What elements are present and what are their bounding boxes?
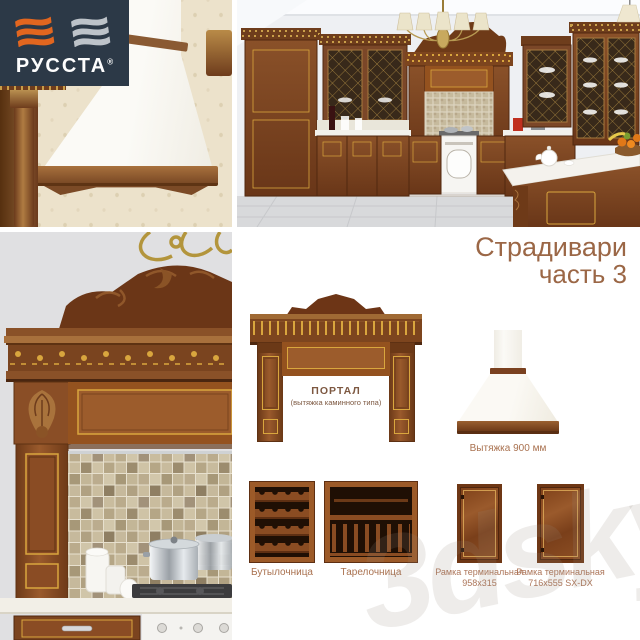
waving-flags-icon [14,7,116,47]
products-panel: Страдивари часть 3 [237,232,640,640]
portal-column-right [388,342,415,442]
portal-beam [68,382,232,449]
hood-render [457,330,559,438]
frame-large-caption-line2: 716х555 SX-DX [516,578,605,589]
hood-band [490,368,526,375]
hood-plinth [457,421,559,434]
brand-logo: РУССТА® [0,0,129,86]
counter-edge [0,612,232,614]
bottle-rack-caption: Бутылочница [250,567,314,579]
portal-column-panel [393,356,410,410]
kitchen-overview-photo [237,0,640,227]
portal-cornice-lip [250,314,422,319]
kitchen-scene [237,0,640,227]
hinge [541,548,544,552]
carved-column [14,92,34,227]
frame-large-caption-line1: Рамка терминальная [516,567,605,578]
bottle-shelf [255,543,309,553]
portal-column-left [257,342,284,442]
portal-figure: ПОРТАЛ (вытяжка каминного типа) [250,294,422,442]
portal-column [26,454,58,588]
registered-mark: ® [107,57,113,66]
plate-rack-bottom-bar [330,553,412,556]
portal-crest [286,294,386,316]
collection-title-line2: часть 3 [475,261,627,287]
portal-column-capital [389,343,414,353]
frame-terminal-large-figure: Рамка терминальная 716х555 SX-DX [537,484,584,589]
frame-small-caption-line1: Рамка терминальная [435,567,524,578]
hood-rail [68,451,232,454]
plate-rack-slats [332,524,410,552]
brand-name: РУССТА® [0,55,129,78]
portal-column-panel [262,356,279,410]
portal-label: ПОРТАЛ (вытяжка каминного типа) [283,376,389,442]
plate-rack-render [325,482,417,562]
frame-terminal-small-caption: Рамка терминальная 958х315 [435,567,524,589]
plate-rack-caption: Тарелочница [325,567,417,579]
bottle-rack-render [250,482,314,562]
countertop [0,598,232,614]
oven-front [142,614,232,640]
frame-terminal-large-render [537,484,584,563]
hinge [461,495,464,499]
portal-label-line1: ПОРТАЛ [283,385,389,397]
cornice-frieze [4,328,232,382]
tall-cabinet-left [241,28,321,196]
portal-label-line2: (вытяжка каминного типа) [283,398,389,407]
frame-gold-outline [543,490,578,557]
portal-column-capital [258,343,283,353]
portal-gold-frieze [253,321,419,335]
hood-wood-shelf [34,166,218,186]
plate-rack-figure: Тарелочница [325,482,417,579]
base-drawer [14,616,140,640]
frame-small-caption-line2: 958х315 [435,578,524,589]
frame-terminal-large-caption: Рамка терминальная 716х555 SX-DX [516,567,605,589]
hood-cone [458,374,558,422]
hinge [461,548,464,552]
frame-terminal-small-figure: Рамка терминальная 958х315 [457,484,502,589]
frame-gold-outline [463,490,496,557]
portal-column-base [263,419,278,434]
hood-chimney [494,330,522,370]
frame-terminal-small-render [457,484,502,563]
collection-title-line1: Страдивари [475,234,627,261]
bottle-shelf [255,492,309,502]
bottle-shelf [255,509,309,519]
portal-cornice [250,314,422,345]
portal-beam [282,342,390,378]
glass-cabinets-right [521,22,640,145]
portal-closeup-photo [0,232,232,640]
portal-scene [0,232,232,640]
bottle-rack-figure: Бутылочница [250,482,314,579]
catalog-collage: РУССТА® [0,0,640,640]
central-portal-hood [405,22,513,194]
plate-rack-rail [334,499,408,502]
collection-title: Страдивари часть 3 [475,234,627,287]
bottle-shelf [255,526,309,536]
portal-column-base [394,419,409,434]
gas-hob [132,584,232,598]
plate-rack-bar [330,515,412,520]
hood-caption: Вытяжка 900 мм [457,443,559,455]
hood-figure: Вытяжка 900 мм [457,330,559,455]
portal-beam-panel [287,347,385,369]
wall-corbel [206,30,232,76]
hinge [541,495,544,499]
